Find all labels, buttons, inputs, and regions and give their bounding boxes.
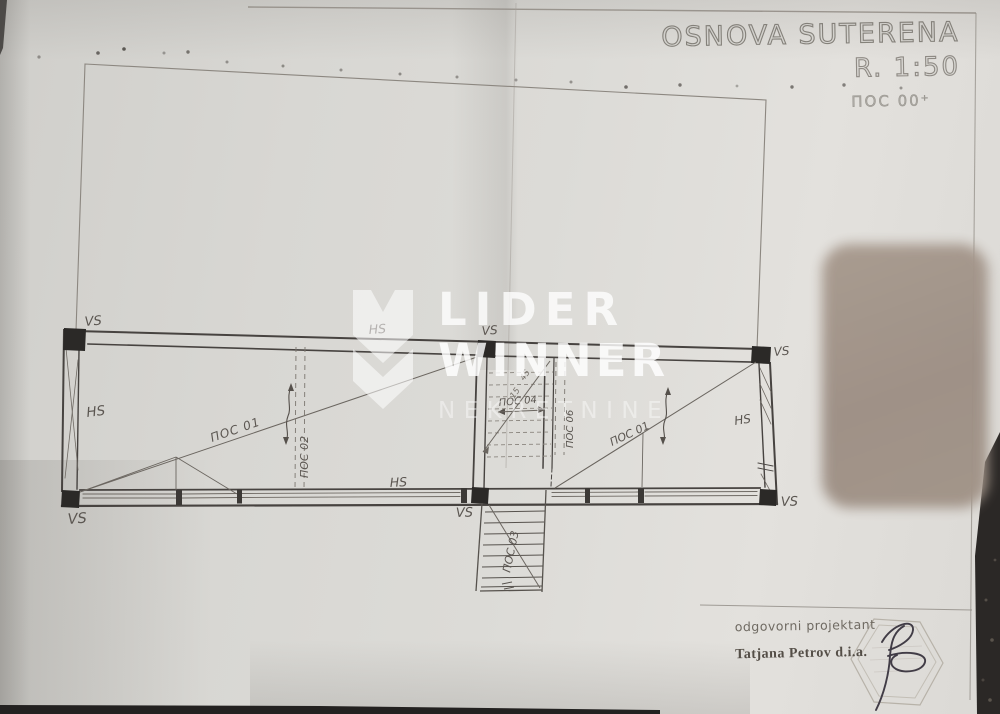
- designer-role-label: odgovorni projektant: [735, 617, 876, 634]
- label-vs: VS: [67, 511, 87, 528]
- drawing-scale: R. 1:50: [600, 52, 960, 88]
- watermark: LIDER WINNER NEKRETNINE: [350, 285, 670, 428]
- label-hs: HS: [86, 403, 107, 421]
- label-vs: VS: [773, 344, 790, 359]
- drawing-title: OSNOVA SUTERENA: [599, 17, 959, 54]
- photo-of-floor-plan: VS HS VS VS HS HS HS VS VS VS ПОС 01 ПОС…: [0, 0, 1000, 714]
- label-pos-03: ПОС 03: [500, 530, 521, 574]
- watermark-line3: NEKRETNINE: [438, 394, 670, 428]
- label-vs: VS: [84, 314, 102, 330]
- watermark-line1: LIDER: [438, 285, 670, 335]
- designer-name: Tatjana Petrov d.i.a.: [735, 645, 876, 663]
- label-hs: HS: [733, 411, 752, 427]
- label-vs: VS: [456, 505, 474, 521]
- photographed-object: [822, 244, 988, 508]
- signature-block: odgovorni projektant Tatjana Petrov d.i.…: [735, 617, 876, 663]
- watermark-line2: WINNER: [438, 335, 670, 387]
- winner-shield-logo-icon: [350, 285, 416, 411]
- label-pos-02: ПОС 02: [298, 436, 311, 478]
- title-block: OSNOVA SUTERENA R. 1:50 ПОС 00⁺: [599, 17, 961, 115]
- label-vs: VS: [781, 494, 799, 510]
- label-hs: HS: [389, 474, 407, 490]
- label-pos-01: ПОС 01: [208, 415, 262, 445]
